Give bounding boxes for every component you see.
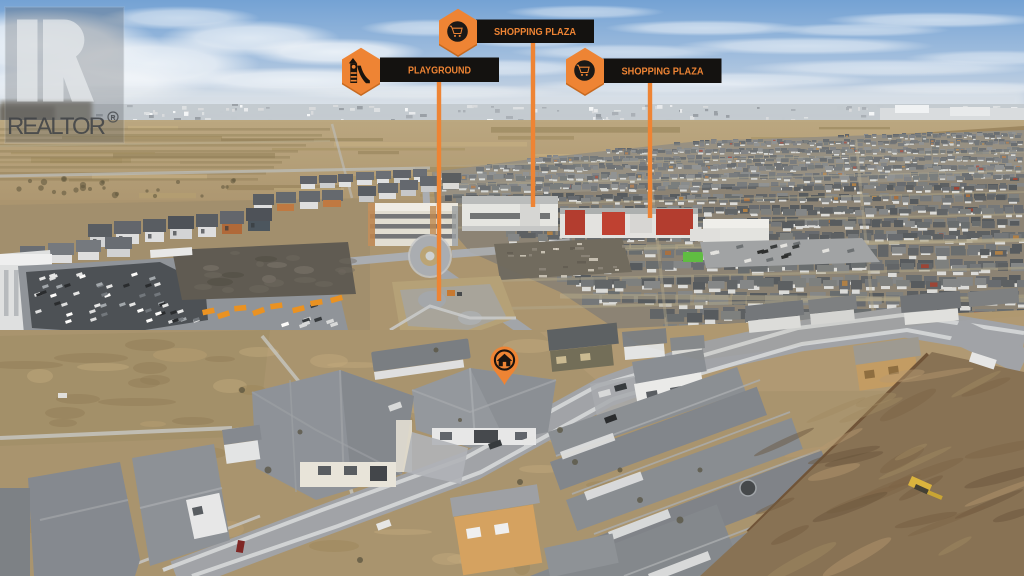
svg-text:SHOPPING PLAZA: SHOPPING PLAZA <box>622 65 704 77</box>
svg-text:SHOPPING PLAZA: SHOPPING PLAZA <box>494 26 576 38</box>
svg-text:PLAYGROUND: PLAYGROUND <box>408 64 471 76</box>
svg-text:R: R <box>110 115 115 122</box>
svg-text:REALTOR: REALTOR <box>7 113 106 140</box>
